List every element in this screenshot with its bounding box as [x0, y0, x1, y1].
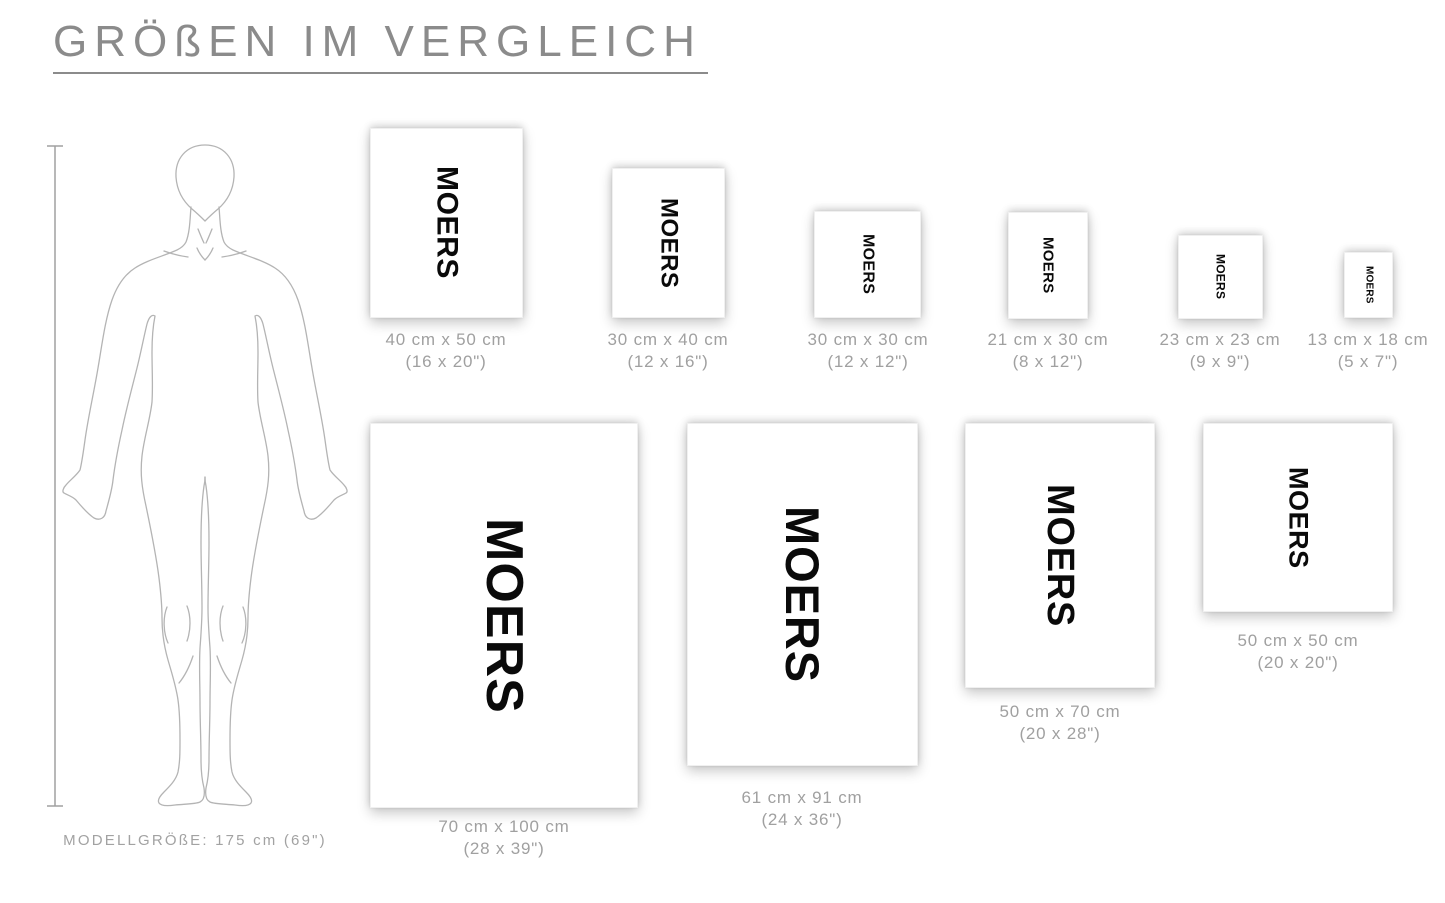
poster-size-cm: 30 cm x 40 cm: [558, 329, 778, 351]
poster-artwork-text: MOERS: [432, 166, 462, 279]
poster-50x50: MOERS: [1203, 423, 1393, 612]
poster-size-cm: 13 cm x 18 cm: [1258, 329, 1445, 351]
poster-30x40: MOERS: [612, 168, 725, 318]
poster-size-in: (5 x 7"): [1258, 351, 1445, 373]
poster-size-label: 40 cm x 50 cm (16 x 20"): [336, 329, 556, 374]
poster-artwork-text: MOERS: [657, 198, 681, 288]
model-height-label: MODELLGRÖßE: 175 cm (69"): [40, 832, 350, 849]
poster-artwork-text: MOERS: [860, 234, 876, 294]
poster-40x50: MOERS: [370, 128, 523, 318]
poster-size-in: (12 x 16"): [558, 351, 778, 373]
poster-13x18: MOERS: [1344, 252, 1393, 318]
poster-artwork-text: MOERS: [1041, 237, 1056, 294]
page-title: GRÖßEN IM VERGLEICH: [53, 18, 708, 74]
poster-size-cm: 61 cm x 91 cm: [692, 787, 912, 809]
poster-size-in: (20 x 28"): [950, 723, 1170, 745]
poster-size-cm: 50 cm x 50 cm: [1188, 630, 1408, 652]
poster-artwork-text: MOERS: [1285, 467, 1312, 569]
poster-21x30: MOERS: [1008, 212, 1088, 319]
poster-size-in: (24 x 36"): [692, 809, 912, 831]
body-outline: [63, 145, 347, 806]
poster-artwork-text: MOERS: [779, 506, 826, 683]
poster-size-in: (28 x 39"): [394, 838, 614, 860]
poster-size-in: (20 x 20"): [1188, 652, 1408, 674]
poster-artwork-text: MOERS: [1041, 484, 1079, 627]
height-ruler: [47, 146, 63, 806]
poster-size-cm: 40 cm x 50 cm: [336, 329, 556, 351]
poster-artwork-text: MOERS: [1364, 266, 1374, 304]
poster-30x30: MOERS: [814, 211, 921, 318]
poster-size-label: 61 cm x 91 cm (24 x 36"): [692, 787, 912, 832]
poster-size-label: 50 cm x 50 cm (20 x 20"): [1188, 630, 1408, 675]
poster-size-label: 13 cm x 18 cm (5 x 7"): [1258, 329, 1445, 374]
poster-size-cm: 70 cm x 100 cm: [394, 816, 614, 838]
poster-size-label: 70 cm x 100 cm (28 x 39"): [394, 816, 614, 861]
poster-artwork-text: MOERS: [478, 518, 530, 714]
poster-size-label: 50 cm x 70 cm (20 x 28"): [950, 701, 1170, 746]
poster-23x23: MOERS: [1178, 235, 1263, 319]
size-comparison-infographic: GRÖßEN IM VERGLEICH MODELLGRÖßE: 175 cm …: [0, 0, 1445, 903]
poster-size-in: (16 x 20"): [336, 351, 556, 373]
poster-61x91: MOERS: [687, 423, 918, 766]
human-figure-outline: [40, 140, 350, 815]
poster-50x70: MOERS: [965, 423, 1155, 688]
poster-70x100: MOERS: [370, 423, 638, 808]
poster-artwork-text: MOERS: [1215, 254, 1227, 299]
poster-size-cm: 50 cm x 70 cm: [950, 701, 1170, 723]
poster-size-label: 30 cm x 40 cm (12 x 16"): [558, 329, 778, 374]
